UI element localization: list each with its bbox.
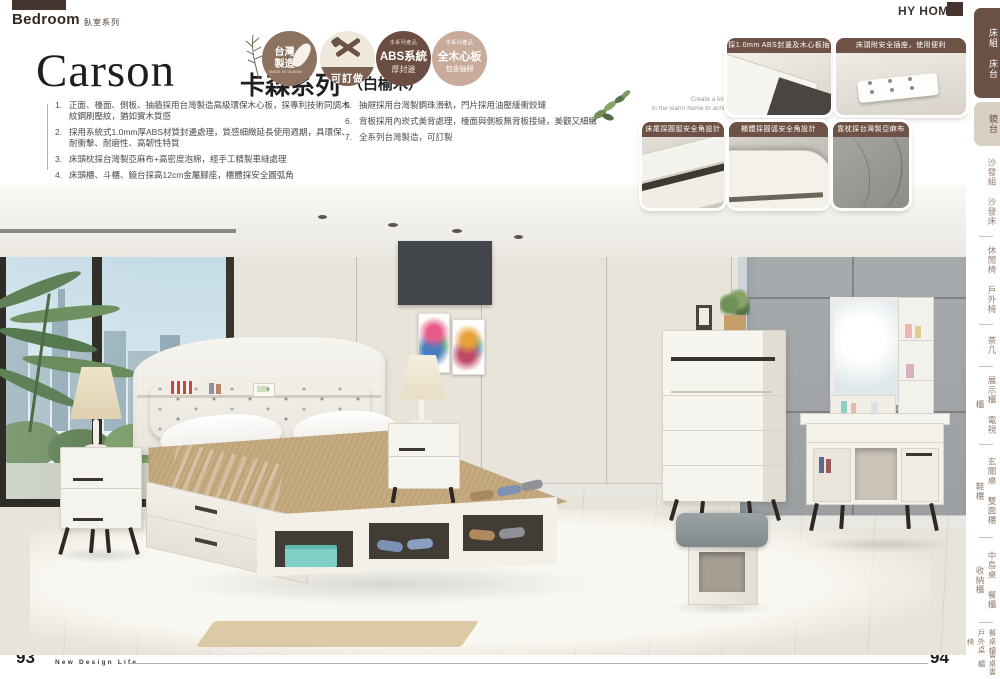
open-shelf [813,448,851,502]
badge-custom-band: 可訂做 [320,67,375,86]
drawer-seam [663,430,785,431]
outlet-slot [888,79,892,83]
sidebar-separator [979,537,993,538]
sidebar-separator [979,444,993,445]
cabinet-door [901,448,939,502]
plant-leaves [720,289,750,315]
detail-photo-drawer-edge: 採1.0mm ABS封邊及木心板抽屜 [727,38,831,115]
cubby-opening [275,531,353,567]
stool-opening [699,552,745,592]
drawer-handle [73,478,103,481]
feature-text: 背板採用內崁式美背處理，檯面與側板無背板接縫，美觀又細緻 [359,116,625,127]
dressing-table [800,413,948,505]
feature-item: 4.床頭櫃、斗櫃、鏡台採高12cm金屬腳座，櫃體採安全圓弧角 [55,170,352,181]
lamp-stem [93,419,99,445]
feature-item: 6.背板採用內崁式美背處理，檯面與側板無背板接縫，美觀又細緻 [345,116,625,127]
nightstand-right [388,423,460,489]
detail-caption: 靠枕採台灣製亞麻布 [833,122,909,137]
detail-photo-image [729,137,828,208]
perfume-bottle [871,402,878,413]
vanity-shadow [806,537,956,553]
five-drawer-chest [662,330,786,502]
drawer-handle [399,448,425,451]
lamp-shade [70,367,122,419]
sidebar-item-tea-tables[interactable]: 茶几 [976,332,998,358]
feature-text: 採用系統式1.0mm厚ABS材質封邊處理，質感細緻延長使用週期，具環保、耐衝擊、… [69,127,352,149]
feature-num: 1. [55,100,69,122]
slipper [469,529,496,541]
feature-item: 7.全系列台灣製造，可訂製 [345,132,625,143]
drawer-seam [389,456,459,457]
shelf-seam [899,340,933,341]
feature-num: 3. [55,154,69,165]
vanity-side-shelf [898,297,934,421]
detail-photo-outlet: 床頭附安全插座，使用便利 [836,38,966,115]
shelf-book [819,457,824,473]
cosmetic-bottle [906,364,914,378]
lamp-stem [419,399,424,421]
nightstand-left [60,447,142,529]
kneehole [855,448,897,500]
detail-caption: 櫃體採圓弧安全角設計 [729,122,828,137]
detail-photo-image [833,137,909,208]
detail-photo-linen: 靠枕採台灣製亞麻布 [833,122,909,208]
badge-customizable: 可訂做 [320,31,375,86]
badge-solid-board: 本系列產品 全木心板 包含抽屜 [432,31,487,86]
sidebar-separator [979,366,993,367]
feature-list-right: 5.抽屜採用台灣製鋼珠滑軌，門片採用油壓緩衝鉸鏈 6.背板採用內崁式美背處理，檯… [345,100,625,148]
outlet-slot [870,90,874,94]
feature-num: 2. [55,127,69,149]
cosmetic-bottle [905,324,912,338]
table-lamp-left [68,365,124,451]
badge-abs-tag: 本系列產品 [376,39,431,46]
cubby-opening [463,515,543,551]
ceiling-light [514,235,523,239]
feature-num: 5. [345,100,359,111]
palm-leaf [0,321,98,359]
drawer-handle [73,518,103,521]
chest-handle-strip [671,357,775,361]
detail-caption: 採1.0mm ABS封邊及木心板抽屜 [727,38,831,53]
badge-abs-title: ABS系統 [376,48,431,64]
feature-text: 床頭枕採台灣製亞麻布+高密度泡棉，經手工精製車縫處理 [69,154,352,165]
section-title-en: Bedroom [12,11,80,28]
badge-mit-line2: 製造 [262,55,317,70]
feature-text: 正面、檯面、側板、抽牆採用台灣製造高級環保木心板，採專利技術同調木紋鋼刷壓紋，猶… [69,100,352,122]
sidebar-item-display-cabinets[interactable]: 展示櫃 電視櫃 [976,374,998,436]
detail-photo-bed-end: 床尾採圓弧安全角設計 [642,122,724,208]
category-sidebar: 床組 床台 鏡台 沙發組 沙發床 休閒椅 戶外椅 茶几 展示櫃 電視櫃 玄關桌 … [970,0,1000,679]
series-name-en: Carson [36,44,175,98]
outlet-slot [910,86,914,90]
shelf-seam [899,380,933,381]
perfume-bottle [851,403,856,413]
drawer-handle [195,537,217,546]
footer-rule [128,663,928,664]
bedroom-photo [0,185,966,655]
sidebar-item-island-tables[interactable]: 中島桌 餐櫃 收納櫃 [976,544,998,616]
feature-item: 2.採用系統式1.0mm厚ABS材質封邊處理，質感細緻延長使用週期，具環保、耐衝… [55,127,352,149]
badge-made-in-taiwan: 台灣 製造 MADE IN TAIWAN [262,31,317,86]
detail-photo-image [727,53,831,115]
detail-photo-image [836,53,966,115]
power-outlet [857,73,939,103]
feature-item: 3.床頭枕採台灣製亞麻布+高密度泡棉，經手工精製車縫處理 [55,154,352,165]
table-lamp-right [398,353,448,427]
sidebar-item-sofas[interactable]: 沙發組 沙發床 [976,156,998,228]
badge-board-tag: 本系列產品 [432,39,487,46]
frame-inner [699,308,709,325]
deer-art-frame [452,319,485,375]
detail-caption: 床頭附安全插座，使用便利 [836,38,966,53]
sidebar-item-desks[interactable]: 書桌書櫃 [976,650,998,678]
feature-num: 6. [345,116,359,127]
badge-abs-sub: 厚封邊 [376,64,431,75]
vanity-mirror [830,297,902,405]
cosmetic-bottle [915,326,921,338]
slipper [499,527,526,540]
badge-mit-sub: MADE IN TAIWAN [262,69,317,74]
stool-base [688,543,758,605]
door-handle [906,453,932,456]
slipper [376,539,403,553]
feature-num: 7. [345,132,359,143]
footer-slogan: New Design Life [55,659,138,666]
storage-box-teal [285,545,337,567]
section-title-zh: 臥室系列 [84,17,120,28]
drawer-handle [195,505,217,514]
sidebar-separator [979,324,993,325]
badge-board-title: 全木心板 [432,48,487,64]
ceiling-light [388,223,398,227]
drawer-seam [61,488,141,489]
feature-text: 床頭櫃、斗櫃、鏡台採高12cm金屬腳座，櫃體採安全圓弧角 [69,170,352,181]
sidebar-separator [979,236,993,237]
wall-dark-panel [398,241,492,305]
outlet-slot [908,77,912,81]
ceiling-light [318,215,327,219]
ceiling-recess-line [0,229,236,233]
brand-logo-block [947,2,963,16]
slipper [407,538,434,550]
feature-item: 5.抽屜採用台灣製鋼珠滑軌，門片採用油壓緩衝鉸鏈 [345,100,625,111]
outlet-slot [890,88,894,92]
feature-text: 全系列台灣製造，可訂製 [359,132,625,143]
drawer-seam [663,395,785,396]
table-body [806,423,944,505]
detail-caption: 床尾採圓弧安全角設計 [642,122,724,137]
feature-num: 4. [55,170,69,181]
drawer-seam [807,442,943,443]
stool-cushion [676,513,768,547]
drawer-seam [663,465,785,466]
sidebar-item-entry-tables[interactable]: 玄關桌 雙面櫃 鞋櫃 [976,452,998,530]
badge-custom-label: 可訂做 [320,70,375,85]
feature-text: 抽屜採用台灣製鋼珠滑軌，門片採用油壓緩衝鉸鏈 [359,100,625,111]
feature-list-left: 1.正面、檯面、側板、抽牆採用台灣製造高級環保木心板，採專利技術同調木紋鋼刷壓紋… [55,100,352,186]
ceiling-light [452,229,462,233]
badge-board-sub: 包含抽屜 [432,64,487,74]
feature-item: 1.正面、檯面、側板、抽牆採用台灣製造高級環保木心板，採專利技術同調木紋鋼刷壓紋… [55,100,352,122]
leaf-icon [588,88,634,124]
palm-leaf [10,299,121,328]
sidebar-item-bed-sets[interactable]: 床組 床台 [974,8,1000,98]
perfume-bottle [841,401,847,413]
chest-plant [718,289,752,331]
chest-frame-photo [696,305,712,330]
cubby-opening [369,523,449,559]
catalog-page: Bedroom 臥室系列 HY HOME Carson 卡森系列 （白榆木） 台… [0,0,1000,679]
shelf-book [826,459,831,473]
feature-divider [47,104,48,170]
badge-abs-system: 本系列產品 ABS系統 厚封邊 [376,31,431,86]
sidebar-separator [979,622,993,623]
sidebar-item-vanity[interactable]: 鏡台 [974,102,1000,146]
sidebar-item-leisure-chairs[interactable]: 休閒椅 戶外椅 [976,244,998,316]
detail-photo-image [642,137,724,208]
detail-photo-rounded-corner: 櫃體採圓弧安全角設計 [729,122,828,208]
series-logo-block [12,0,66,10]
lamp-shade [400,355,446,399]
drawer-shadow-line [671,391,771,393]
runner-rug [196,621,479,647]
